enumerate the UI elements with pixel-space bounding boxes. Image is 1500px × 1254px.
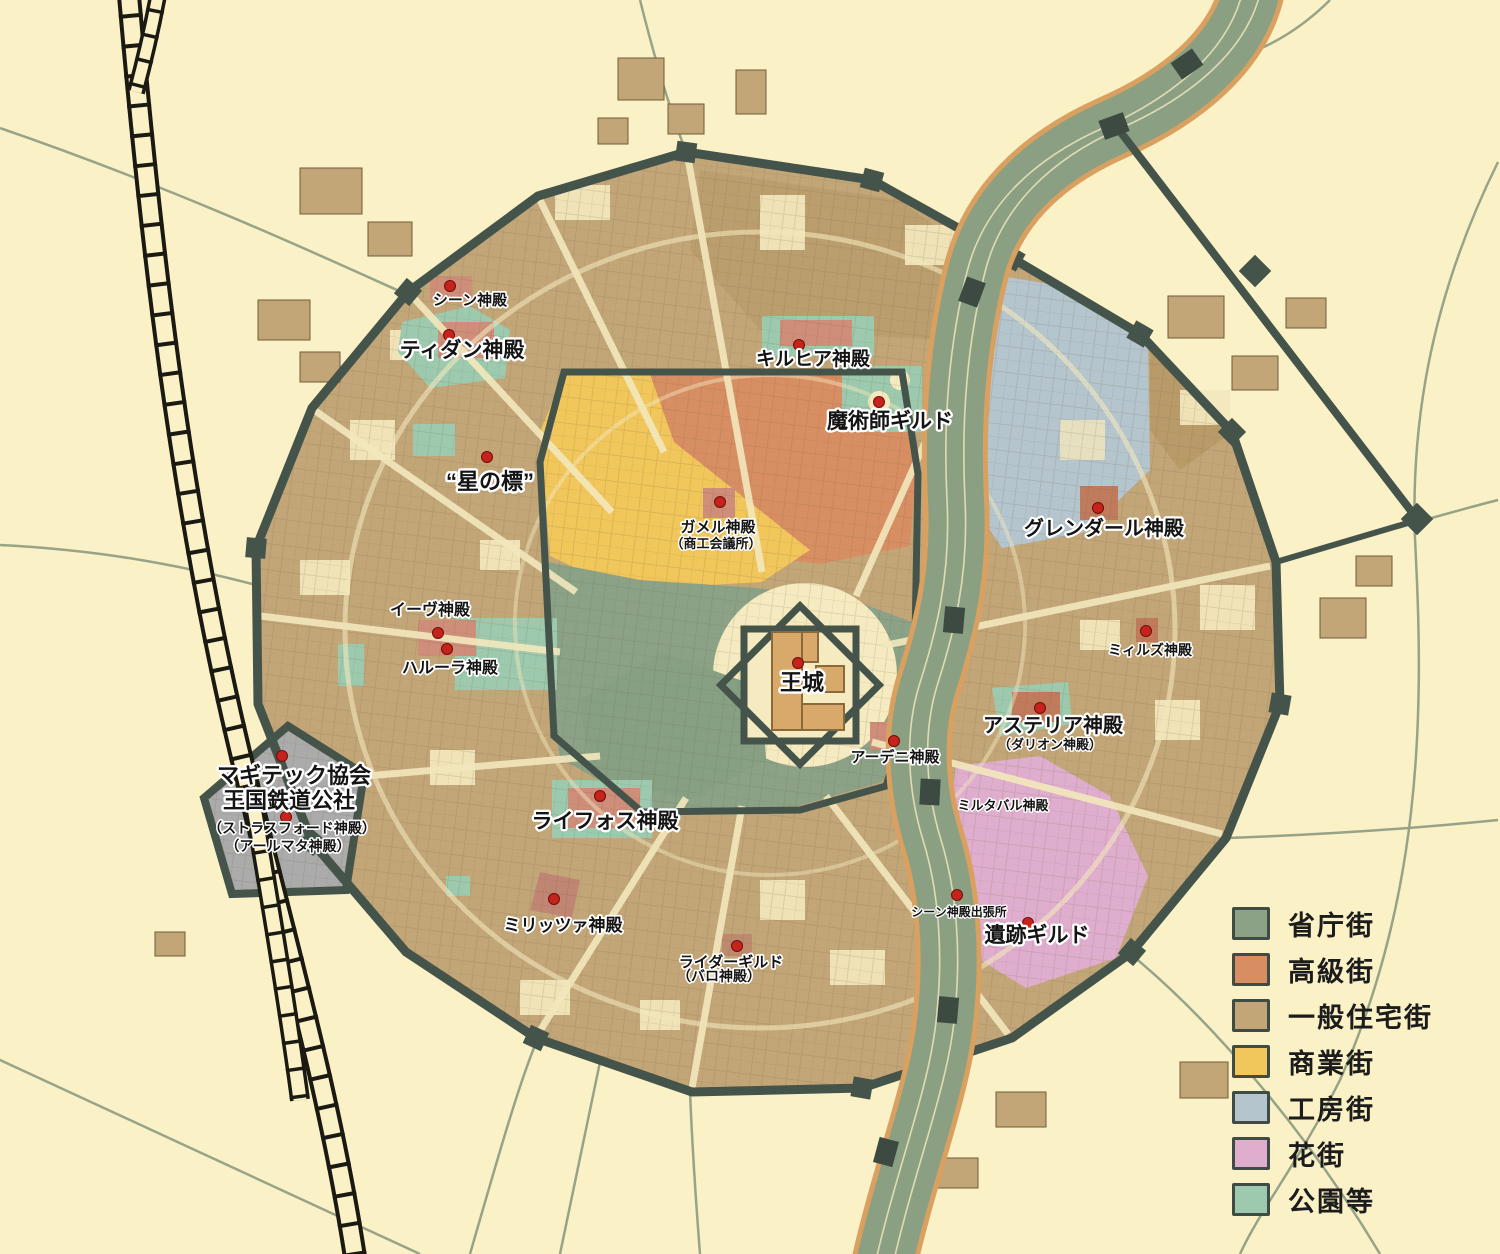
legend-item: 商業街 <box>1232 1044 1492 1078</box>
temple-marker <box>874 397 885 408</box>
legend-item: 花街 <box>1232 1136 1492 1170</box>
map-label-chamber-of-commerce: （商工会議所） <box>670 536 761 551</box>
legend-swatch <box>1232 1091 1270 1124</box>
legend-swatch <box>1232 1137 1270 1170</box>
map-label-lyphos-temple: ライフォス神殿 <box>532 809 680 833</box>
temple-marker <box>732 941 743 952</box>
map-label-shien-temple: シーン神殿 <box>433 291 508 309</box>
map-label-armata-temple: （アールマタ神殿） <box>225 838 350 854</box>
temple-marker <box>1093 503 1104 514</box>
map-label-dalion-temple: （ダリオン神殿） <box>998 737 1102 752</box>
legend-item: 工房街 <box>1232 1090 1492 1124</box>
legend-item: 高級街 <box>1232 952 1492 986</box>
temple-marker <box>433 628 444 639</box>
map-label-strasford-temple: （ストラスフォード神殿） <box>208 820 376 836</box>
map-label-royal-railway-corp: 王国鉄道公社 <box>223 788 355 813</box>
map-label-mage-guild: 魔術師ギルド <box>827 409 953 433</box>
legend-label: 商業街 <box>1288 1042 1375 1081</box>
map-label-hoshi-no-shirube: “星の標” <box>446 469 534 494</box>
legend-swatch <box>1232 1045 1270 1078</box>
temple-marker <box>793 658 804 669</box>
legend: 省庁街 高級街 一般住宅街 商業街 工房街 花街 公園等 <box>1232 906 1492 1216</box>
map-label-balo-temple: （バロ神殿） <box>677 968 761 984</box>
legend-item: 公園等 <box>1232 1182 1492 1216</box>
temple-marker <box>952 890 963 901</box>
temple-marker <box>1035 703 1046 714</box>
legend-item: 省庁街 <box>1232 906 1492 940</box>
map-label-meelz-temple: ミィルズ神殿 <box>1108 642 1193 658</box>
temple-marker <box>442 644 453 655</box>
legend-label: 公園等 <box>1288 1180 1375 1219</box>
temple-marker <box>277 751 288 762</box>
temple-marker <box>715 497 726 508</box>
temple-marker <box>445 281 456 292</box>
map-label-royal-castle: 王城 <box>780 670 824 695</box>
map-label-harula-temple: ハルーラ神殿 <box>402 658 499 677</box>
temple-marker <box>482 452 493 463</box>
legend-label: 高級街 <box>1288 950 1375 989</box>
map-label-ruins-guild: 遺跡ギルド <box>985 924 1090 947</box>
temple-marker <box>549 894 560 905</box>
legend-label: 花街 <box>1288 1134 1346 1173</box>
legend-item: 一般住宅街 <box>1232 998 1492 1032</box>
map-label-adeni-temple: アーデニ神殿 <box>850 748 940 766</box>
map-label-magitech-association: マギテック協会 <box>217 763 371 788</box>
temple-marker <box>889 736 900 747</box>
map-label-eve-temple: イーヴ神殿 <box>390 600 471 619</box>
map-label-miltabal-temple: ミルタバル神殿 <box>957 798 1049 813</box>
temple-marker <box>595 791 606 802</box>
legend-swatch <box>1232 999 1270 1032</box>
temple-marker <box>1141 626 1152 637</box>
legend-swatch <box>1232 953 1270 986</box>
map-label-kirhia-temple: キルヒア神殿 <box>756 347 871 370</box>
map-label-tidan-temple: ティダン神殿 <box>400 338 526 362</box>
map-label-gamel-temple: ガメル神殿 <box>680 518 756 536</box>
legend-label: 省庁街 <box>1288 904 1375 943</box>
legend-swatch <box>1232 1183 1270 1216</box>
map-label-grendal-temple: グレンダール神殿 <box>1024 516 1185 540</box>
legend-swatch <box>1232 907 1270 940</box>
legend-label: 工房街 <box>1288 1088 1375 1127</box>
legend-label: 一般住宅街 <box>1288 996 1433 1035</box>
map-label-shien-branch: シーン神殿出張所 <box>911 904 1006 919</box>
map-label-miritza-temple: ミリッツァ神殿 <box>504 915 624 935</box>
map-label-asteria-temple: アステリア神殿 <box>983 713 1124 737</box>
